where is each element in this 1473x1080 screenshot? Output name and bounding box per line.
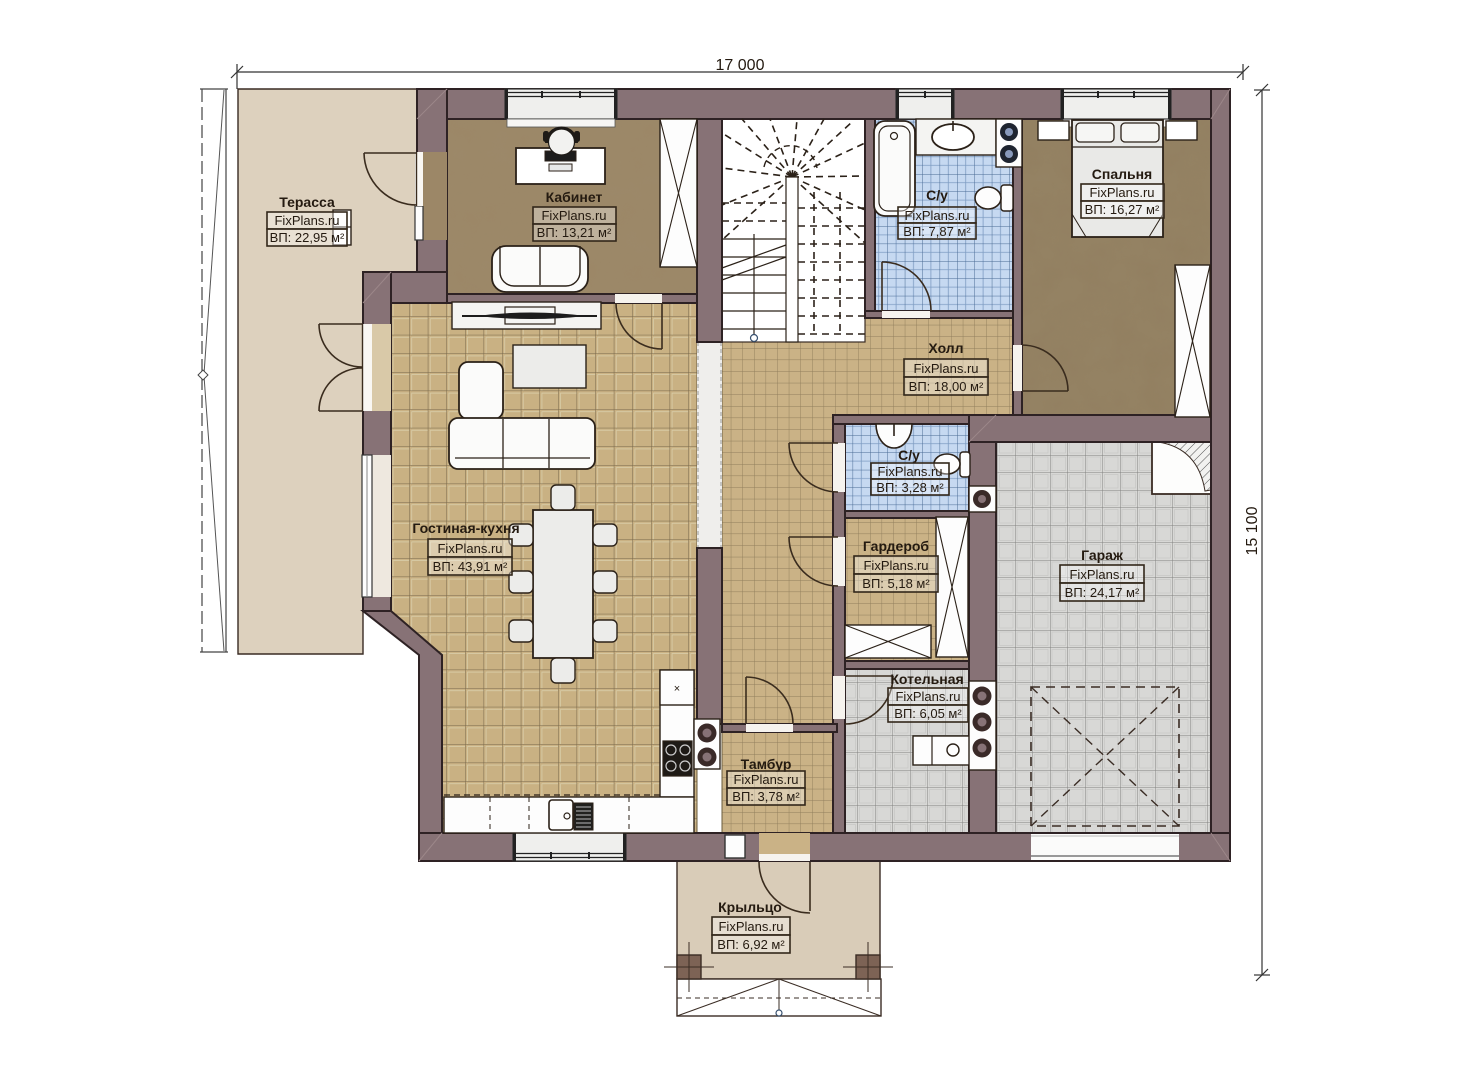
svg-text:ВП: 5,18 м²: ВП: 5,18 м² <box>862 576 930 591</box>
svg-text:Гостиная-кухня: Гостиная-кухня <box>412 520 519 536</box>
svg-text:FixPlans.ru: FixPlans.ru <box>718 919 783 934</box>
svg-text:ВП: 43,91 м²: ВП: 43,91 м² <box>433 559 508 574</box>
svg-text:Кабинет: Кабинет <box>546 189 603 205</box>
svg-text:Крыльцо: Крыльцо <box>718 899 782 915</box>
svg-text:17 000: 17 000 <box>716 57 765 74</box>
svg-text:FixPlans.ru: FixPlans.ru <box>877 464 942 479</box>
svg-text:ВП: 16,27 м²: ВП: 16,27 м² <box>1085 202 1160 217</box>
svg-text:FixPlans.ru: FixPlans.ru <box>895 689 960 704</box>
svg-text:FixPlans.ru: FixPlans.ru <box>904 208 969 223</box>
svg-text:×: × <box>674 683 680 695</box>
svg-text:ВП: 24,17 м²: ВП: 24,17 м² <box>1065 585 1140 600</box>
svg-text:Спальня: Спальня <box>1092 166 1152 182</box>
svg-text:FixPlans.ru: FixPlans.ru <box>1069 567 1134 582</box>
svg-text:ВП: 18,00 м²: ВП: 18,00 м² <box>909 379 984 394</box>
svg-text:FixPlans.ru: FixPlans.ru <box>541 208 606 223</box>
svg-text:FixPlans.ru: FixPlans.ru <box>274 213 339 228</box>
svg-text:ВП: 3,78 м²: ВП: 3,78 м² <box>732 789 800 804</box>
svg-text:С/у: С/у <box>898 447 920 463</box>
svg-text:Терасса: Терасса <box>279 194 335 210</box>
svg-text:FixPlans.ru: FixPlans.ru <box>863 558 928 573</box>
svg-text:Котельная: Котельная <box>890 671 963 687</box>
svg-text:FixPlans.ru: FixPlans.ru <box>437 541 502 556</box>
svg-text:ВП: 7,87 м²: ВП: 7,87 м² <box>903 224 971 239</box>
svg-text:Гардероб: Гардероб <box>863 538 930 554</box>
svg-text:15 100: 15 100 <box>1244 506 1261 555</box>
svg-text:FixPlans.ru: FixPlans.ru <box>913 361 978 376</box>
svg-text:ВП: 22,95 м²: ВП: 22,95 м² <box>270 230 345 245</box>
svg-text:ВП: 6,92 м²: ВП: 6,92 м² <box>717 937 785 952</box>
svg-text:Холл: Холл <box>928 340 963 356</box>
svg-text:ВП: 13,21 м²: ВП: 13,21 м² <box>537 225 612 240</box>
svg-text:С/у: С/у <box>926 187 948 203</box>
svg-text:ВП: 6,05 м²: ВП: 6,05 м² <box>894 706 962 721</box>
svg-text:FixPlans.ru: FixPlans.ru <box>1089 185 1154 200</box>
svg-text:FixPlans.ru: FixPlans.ru <box>733 772 798 787</box>
svg-text:Тамбур: Тамбур <box>741 756 792 772</box>
svg-text:Гараж: Гараж <box>1081 547 1124 563</box>
svg-text:ВП: 3,28 м²: ВП: 3,28 м² <box>876 480 944 495</box>
